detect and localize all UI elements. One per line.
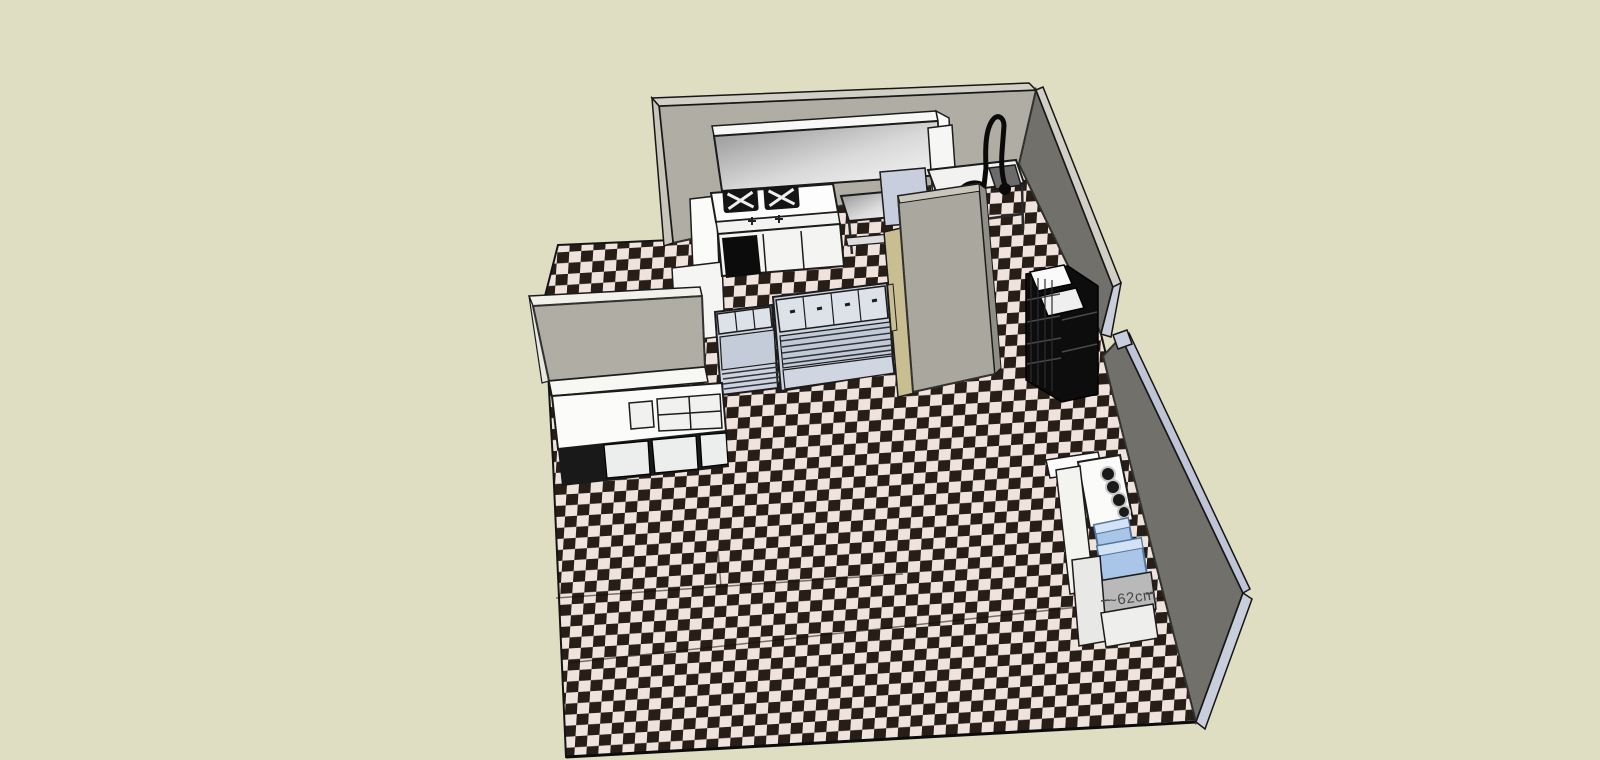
counter-lower-door-3 bbox=[700, 433, 728, 467]
burner-left bbox=[722, 188, 759, 213]
faucet-sprayer-head bbox=[999, 183, 1011, 195]
oven-open-gap bbox=[722, 235, 761, 278]
partition-wall[interactable] bbox=[884, 184, 1001, 397]
counter-door-panel bbox=[629, 401, 654, 429]
service-counter[interactable] bbox=[549, 367, 729, 486]
model-viewport[interactable]: ~62cm bbox=[0, 0, 1600, 760]
burner-right bbox=[763, 185, 800, 210]
half-wall-face bbox=[533, 296, 705, 381]
prep-small-door bbox=[720, 330, 776, 370]
counter-lower-door-1 bbox=[604, 441, 650, 478]
half-wall[interactable] bbox=[529, 287, 705, 383]
prep-counter-small[interactable] bbox=[715, 305, 780, 395]
partition-face bbox=[898, 184, 995, 392]
storage-rack[interactable] bbox=[1026, 265, 1098, 402]
counter-lower-door-2 bbox=[652, 436, 698, 473]
prep-counter-large[interactable] bbox=[773, 283, 897, 391]
